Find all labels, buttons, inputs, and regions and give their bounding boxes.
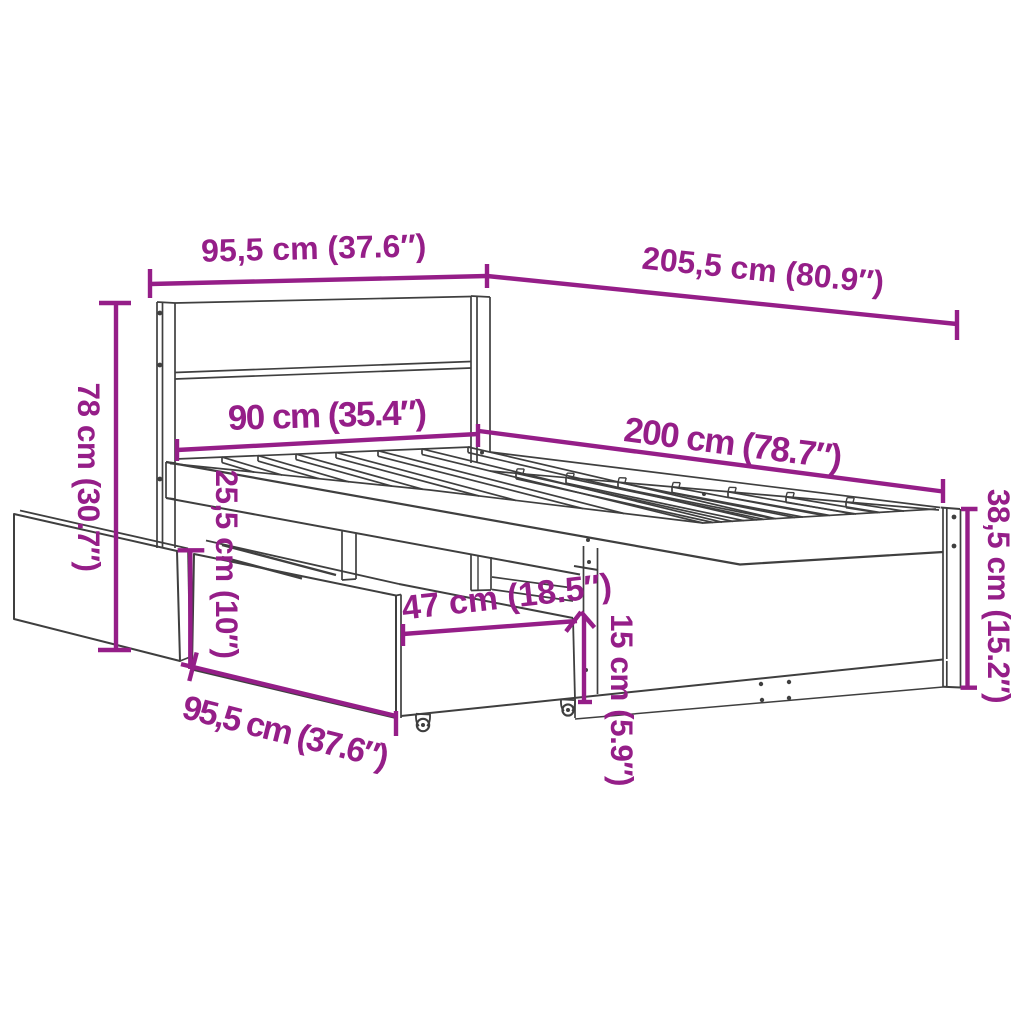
svg-text:25,5 cm (10″): 25,5 cm (10″) [209,470,245,659]
svg-text:15 cm (5.9″): 15 cm (5.9″) [604,614,640,786]
svg-text:90 cm (35.4″): 90 cm (35.4″) [227,393,426,438]
svg-text:78 cm (30.7″): 78 cm (30.7″) [71,383,107,572]
svg-text:95,5 cm (37.6″): 95,5 cm (37.6″) [201,227,427,268]
svg-text:38,5 cm (15.2″): 38,5 cm (15.2″) [981,489,1017,703]
